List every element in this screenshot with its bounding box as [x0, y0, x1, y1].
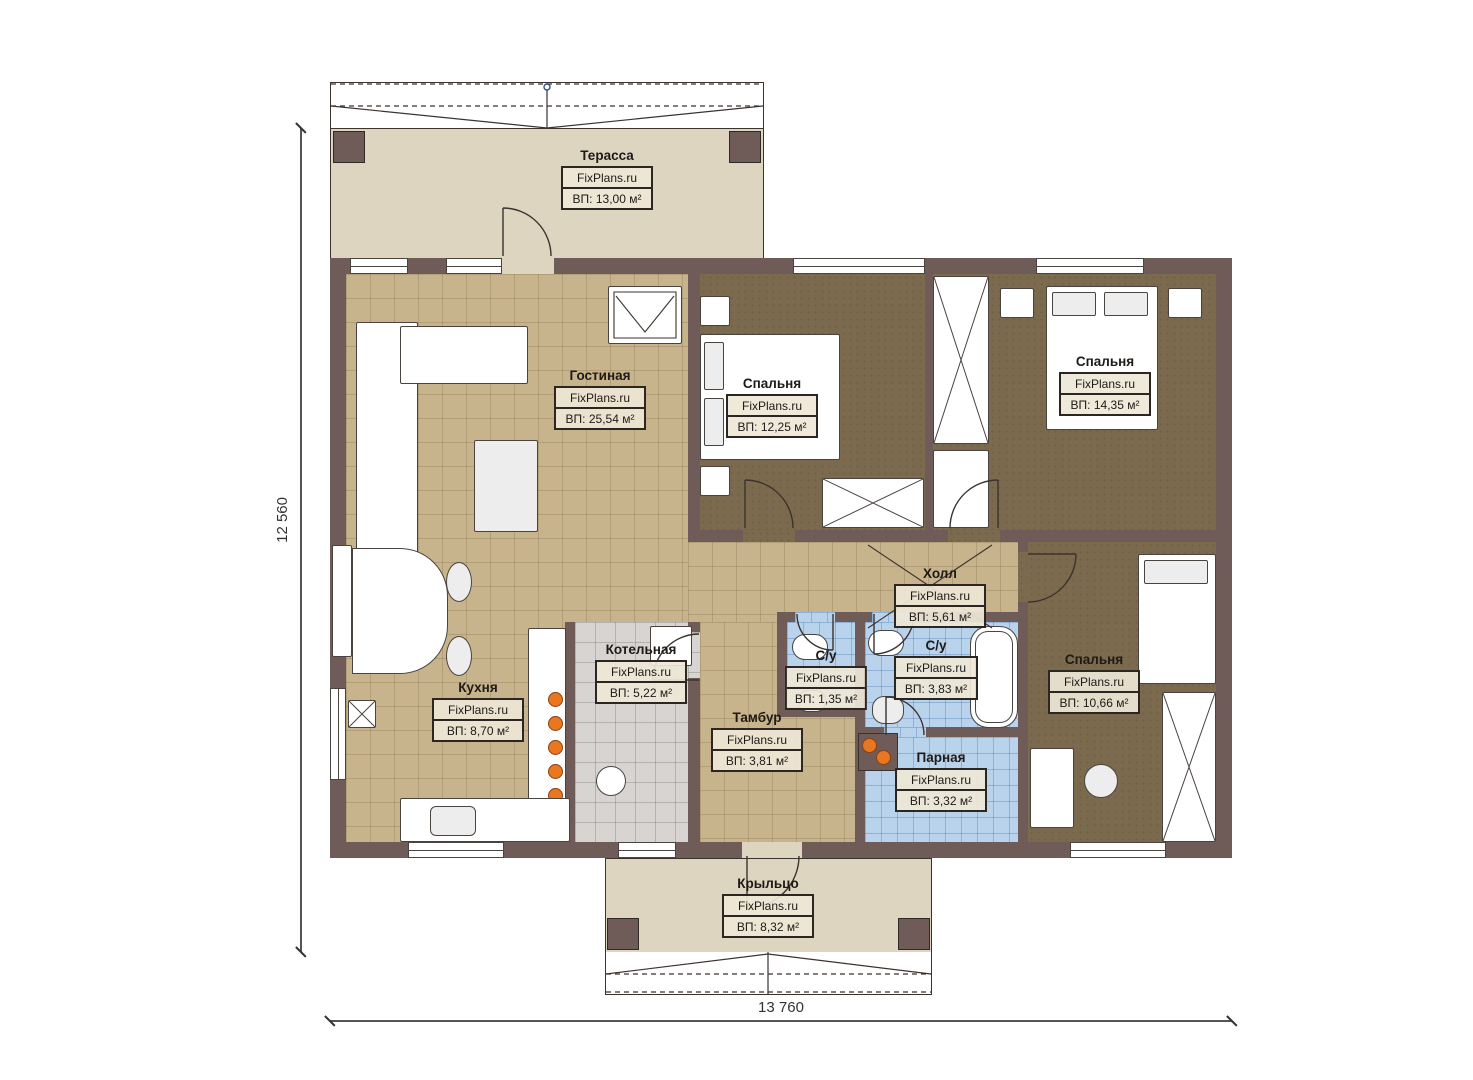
brand-label: FixPlans.ru	[1061, 374, 1149, 395]
area-label: ВП: 10,66 м²	[1050, 693, 1138, 712]
wall-bedroom1-bedroom2	[925, 274, 933, 530]
area-label: ВП: 8,70 м²	[434, 721, 522, 740]
room-name: Терасса	[561, 148, 653, 163]
nightstand-bedroom2-a	[1000, 288, 1034, 318]
brand-label: FixPlans.ru	[896, 586, 984, 607]
door-gap-wc-small	[795, 612, 835, 622]
area-label: ВП: 14,35 м²	[1061, 395, 1149, 414]
room-name: С/у	[894, 638, 978, 653]
door-gap-bedroom3	[1018, 552, 1028, 602]
room-name: Кухня	[432, 680, 524, 695]
brand-label: FixPlans.ru	[896, 658, 976, 679]
nightstand-bedroom2-b	[1168, 288, 1202, 318]
brand-label: FixPlans.ru	[434, 700, 522, 721]
coffee-table	[474, 440, 538, 532]
room-label-porch: Крыльцо FixPlans.ru ВП: 8,32 м²	[722, 876, 814, 938]
window-kitchen-bottom	[408, 842, 504, 858]
door-gap-bedroom1	[743, 530, 795, 542]
sofa-chaise	[400, 326, 528, 384]
kitchen-vent	[348, 700, 376, 728]
floor-plan: Терасса FixPlans.ru ВП: 13,00 м² Гостина…	[0, 0, 1473, 1080]
dining-table	[352, 548, 448, 674]
dresser-bedroom2	[933, 450, 989, 528]
pillow-bedroom1-a	[704, 342, 724, 390]
boiler-unit	[596, 766, 626, 796]
pillow-bedroom1-b	[704, 398, 724, 446]
terrace-post-right	[729, 131, 761, 163]
room-label-bedroom2: Спальня FixPlans.ru ВП: 14,35 м²	[1059, 354, 1151, 416]
sauna-stove-coal-2	[876, 750, 891, 765]
brand-label: FixPlans.ru	[563, 168, 651, 189]
room-label-steam: Парная FixPlans.ru ВП: 3,32 м²	[895, 750, 987, 812]
wall-living-bedroom1	[688, 274, 700, 530]
room-label-tambur: Тамбур FixPlans.ru ВП: 3,81 м²	[711, 710, 803, 772]
room-label-hall: Холл FixPlans.ru ВП: 5,61 м²	[894, 566, 986, 628]
room-name: Спальня	[726, 376, 818, 391]
room-label-kitchen: Кухня FixPlans.ru ВП: 8,70 м²	[432, 680, 524, 742]
room-name: Котельная	[595, 642, 687, 657]
room-name: Холл	[894, 566, 986, 581]
window-bedroom2	[1036, 258, 1144, 274]
brand-label: FixPlans.ru	[713, 730, 801, 751]
area-label: ВП: 8,32 м²	[724, 917, 812, 936]
chair-bedroom3	[1084, 764, 1118, 798]
brand-label: FixPlans.ru	[597, 662, 685, 683]
window-living-1	[350, 258, 408, 274]
kitchen-sink	[430, 806, 476, 836]
dimension-label-left: 12 560	[274, 497, 291, 543]
desk-bedroom3	[1030, 748, 1074, 828]
dining-chair-1	[446, 562, 472, 602]
roof-truss-bottom-lines	[606, 952, 931, 994]
window-kitchen-left	[330, 688, 346, 780]
door-gap-porch	[742, 842, 802, 858]
sauna-stove-coal-1	[862, 738, 877, 753]
area-label: ВП: 1,35 м²	[787, 689, 865, 708]
brand-label: FixPlans.ru	[897, 770, 985, 791]
brand-label: FixPlans.ru	[787, 668, 865, 689]
room-label-bedroom3: Спальня FixPlans.ru ВП: 10,66 м²	[1048, 652, 1140, 714]
area-label: ВП: 5,61 м²	[896, 607, 984, 626]
room-name: Крыльцо	[722, 876, 814, 891]
window-boiler-bottom	[618, 842, 676, 858]
area-label: ВП: 3,81 м²	[713, 751, 801, 770]
brand-label: FixPlans.ru	[1050, 672, 1138, 693]
sink-wc-large	[872, 696, 904, 724]
area-label: ВП: 25,54 м²	[556, 409, 644, 428]
area-label: ВП: 5,22 м²	[597, 683, 685, 702]
brand-label: FixPlans.ru	[556, 388, 644, 409]
room-label-living: Гостиная FixPlans.ru ВП: 25,54 м²	[554, 368, 646, 430]
stove-burner-4	[548, 764, 563, 779]
nightstand-bedroom1-b	[700, 466, 730, 496]
stove-burner-3	[548, 740, 563, 755]
room-label-boiler: Котельная FixPlans.ru ВП: 5,22 м²	[595, 642, 687, 704]
terrace-deck	[330, 128, 764, 262]
kitchen-counter-low	[400, 798, 570, 842]
dining-chair-2	[446, 636, 472, 676]
roof-truss-top-lines	[331, 83, 763, 129]
fireplace	[608, 286, 682, 344]
stove-burner-2	[548, 716, 563, 731]
dimension-line-bottom	[330, 1020, 1232, 1022]
room-name: Гостиная	[554, 368, 646, 383]
room-name: Спальня	[1048, 652, 1140, 667]
stove-burner-1	[548, 692, 563, 707]
window-bedroom3-bottom	[1070, 842, 1166, 858]
wardrobe-bedroom2	[933, 276, 989, 444]
area-label: ВП: 13,00 м²	[563, 189, 651, 208]
roof-truss-bottom	[605, 952, 932, 995]
window-living-2	[446, 258, 502, 274]
wardrobe-bedroom3	[1162, 692, 1216, 842]
dimension-line-left	[300, 128, 302, 952]
brand-label: FixPlans.ru	[728, 396, 816, 417]
brand-label: FixPlans.ru	[724, 896, 812, 917]
window-bedroom1	[793, 258, 925, 274]
area-label: ВП: 12,25 м²	[728, 417, 816, 436]
nightstand-bedroom1-a	[700, 296, 730, 326]
area-label: ВП: 3,32 м²	[897, 791, 985, 810]
room-name: Тамбур	[711, 710, 803, 725]
pillow-bedroom3	[1144, 560, 1208, 584]
door-gap-bedroom2	[948, 530, 1000, 542]
porch-post-left	[607, 918, 639, 950]
room-label-bedroom1: Спальня FixPlans.ru ВП: 12,25 м²	[726, 376, 818, 438]
porch-post-right	[898, 918, 930, 950]
dimension-label-bottom: 13 760	[758, 999, 804, 1016]
area-label: ВП: 3,83 м²	[896, 679, 976, 698]
terrace-post-left	[333, 131, 365, 163]
pillow-bedroom2-a	[1052, 292, 1096, 316]
closet-bedroom1	[822, 478, 924, 528]
window-seat	[332, 545, 352, 657]
roof-truss-top	[330, 82, 764, 129]
room-label-wc-large: С/у FixPlans.ru ВП: 3,83 м²	[894, 638, 978, 700]
room-name: Спальня	[1059, 354, 1151, 369]
pillow-bedroom2-b	[1104, 292, 1148, 316]
room-label-wc-small: С/у FixPlans.ru ВП: 1,35 м²	[785, 648, 867, 710]
room-name: Парная	[895, 750, 987, 765]
room-name: С/у	[785, 648, 867, 663]
room-label-terrace: Терасса FixPlans.ru ВП: 13,00 м²	[561, 148, 653, 210]
door-gap-terrace	[500, 258, 554, 274]
